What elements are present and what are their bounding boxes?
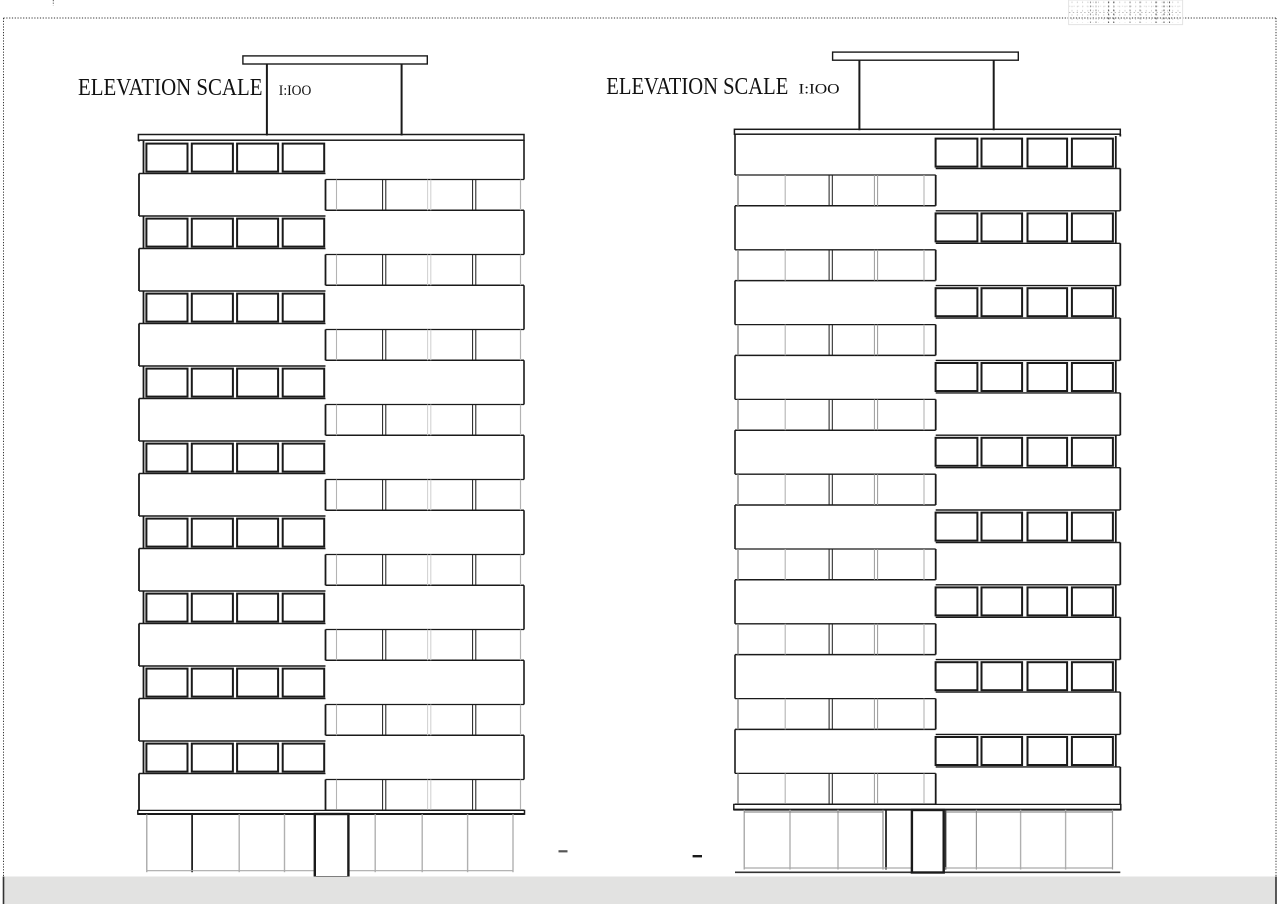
svg-text:ELEVATION SCALE: ELEVATION SCALE	[606, 73, 788, 100]
svg-text:I:IOO: I:IOO	[799, 82, 840, 98]
svg-text:I:IOO: I:IOO	[279, 83, 312, 99]
svg-text:ELEVATION SCALE: ELEVATION SCALE	[78, 74, 263, 101]
